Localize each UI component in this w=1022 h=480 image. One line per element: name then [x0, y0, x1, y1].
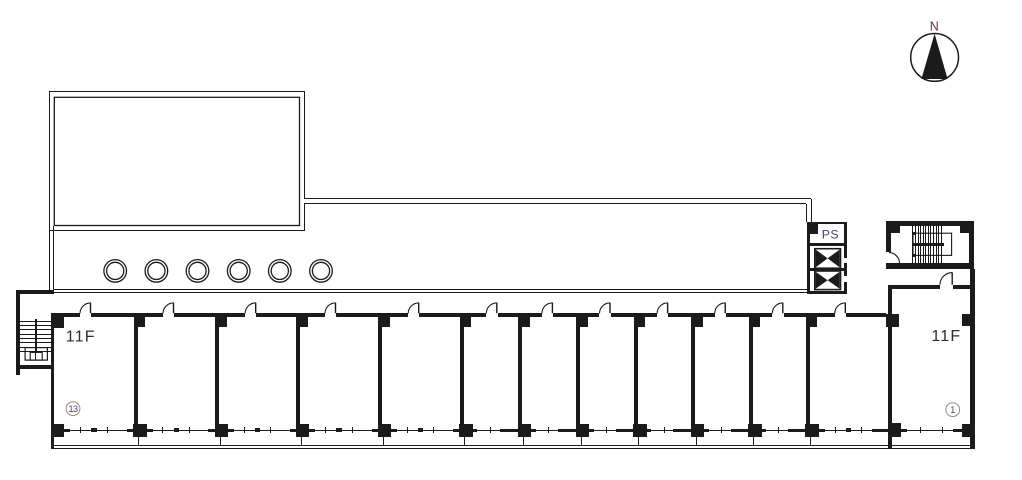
- svg-text:PS: PS: [822, 228, 839, 242]
- svg-text:11F: 11F: [66, 328, 96, 345]
- svg-text:1: 1: [950, 405, 955, 415]
- svg-text:13: 13: [68, 404, 78, 414]
- svg-text:11F: 11F: [931, 328, 961, 345]
- svg-text:N: N: [930, 19, 939, 33]
